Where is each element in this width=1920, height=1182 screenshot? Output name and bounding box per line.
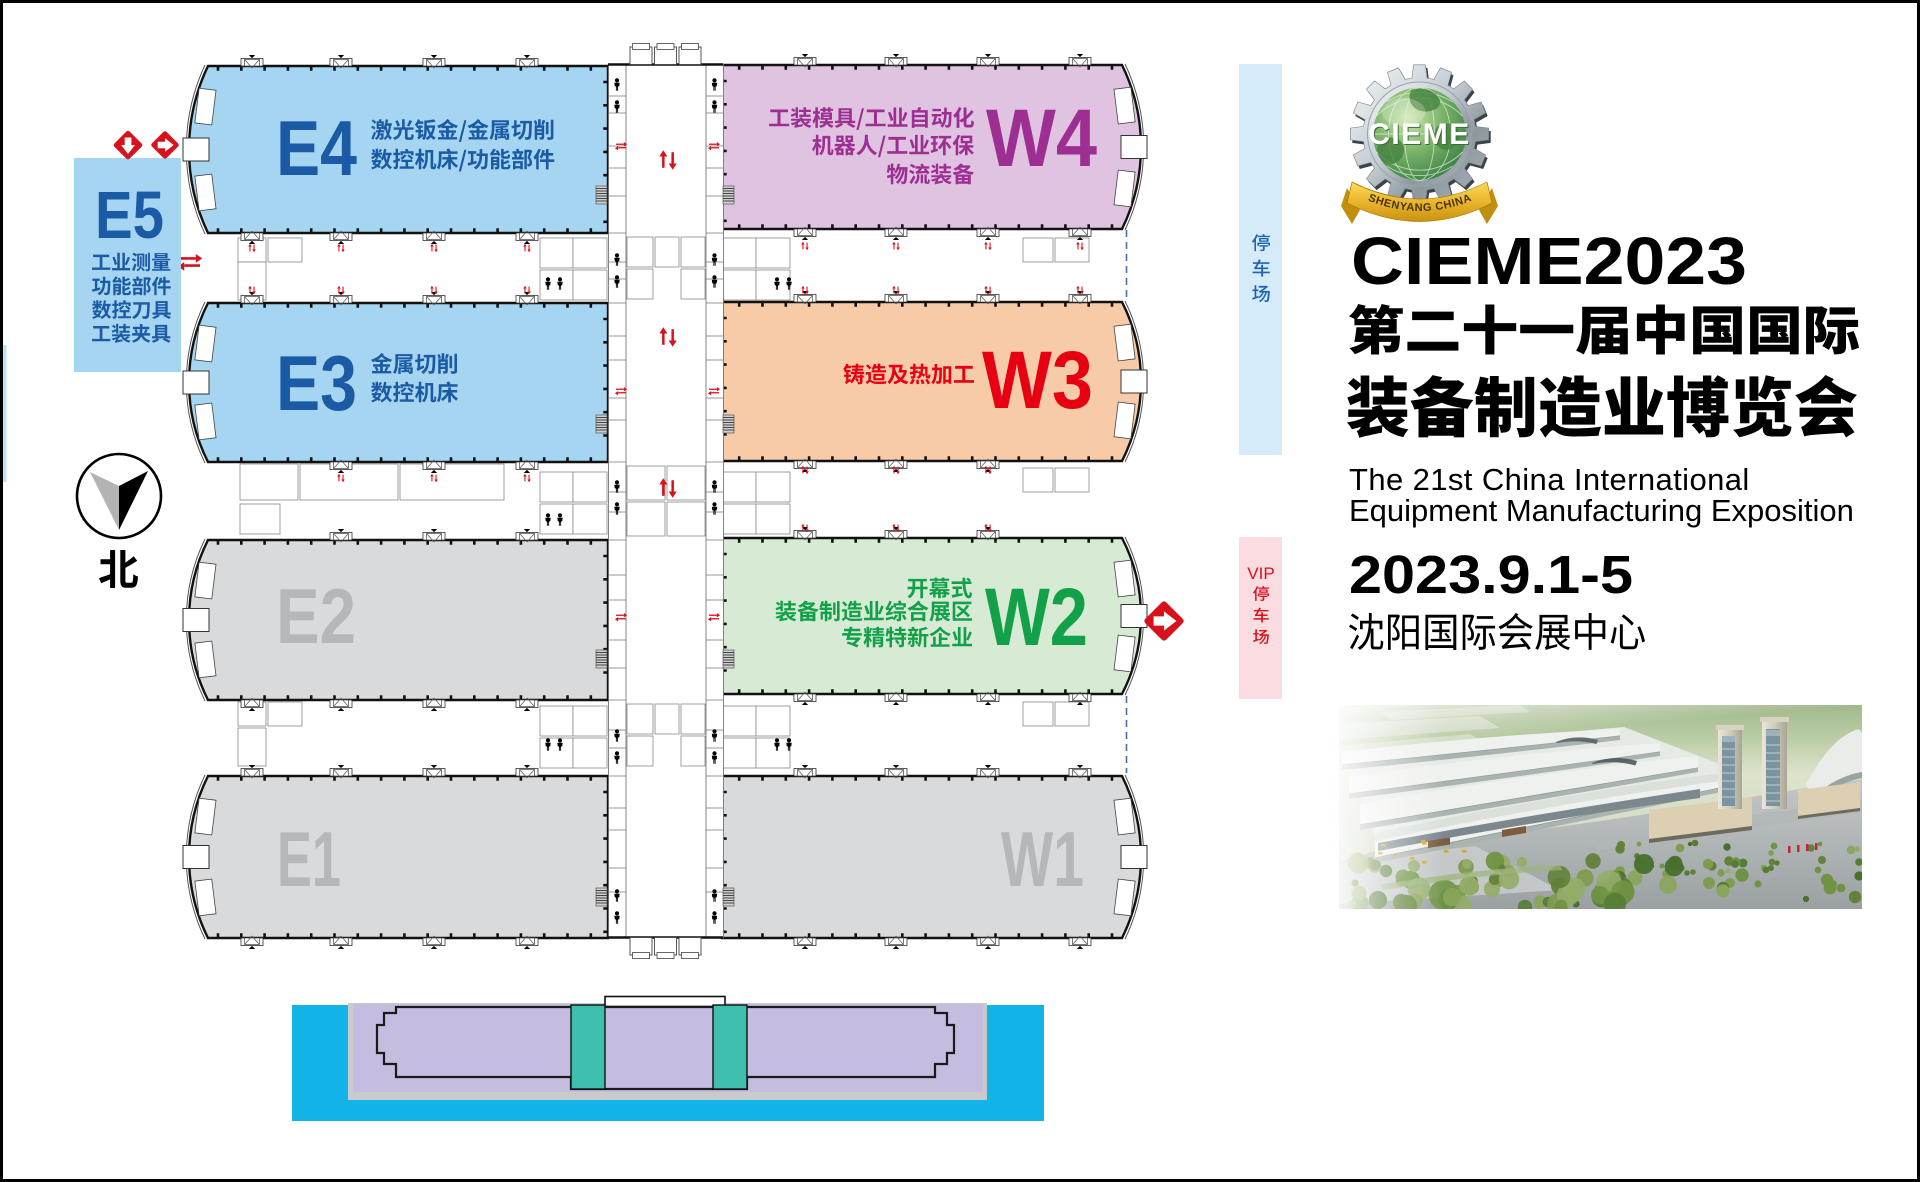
svg-text:The 21st China International: The 21st China International <box>1349 462 1750 497</box>
svg-text:CIEME: CIEME <box>1368 118 1471 151</box>
svg-text:E1: E1 <box>277 815 341 903</box>
svg-text:2023.9.1-5: 2023.9.1-5 <box>1349 545 1633 605</box>
svg-text:E2: E2 <box>276 572 356 660</box>
svg-text:W2: W2 <box>985 572 1088 663</box>
svg-text:E5: E5 <box>95 178 164 253</box>
svg-text:CIEME2023: CIEME2023 <box>1351 224 1747 299</box>
svg-text:E3: E3 <box>276 339 357 427</box>
svg-text:W3: W3 <box>982 335 1093 426</box>
svg-text:Equipment Manufacturing Exposi: Equipment Manufacturing Exposition <box>1349 493 1854 528</box>
svg-text:VIP: VIP <box>1247 564 1274 583</box>
svg-text:W1: W1 <box>1001 815 1084 903</box>
svg-text:W4: W4 <box>986 93 1097 184</box>
svg-text:E4: E4 <box>276 104 357 192</box>
